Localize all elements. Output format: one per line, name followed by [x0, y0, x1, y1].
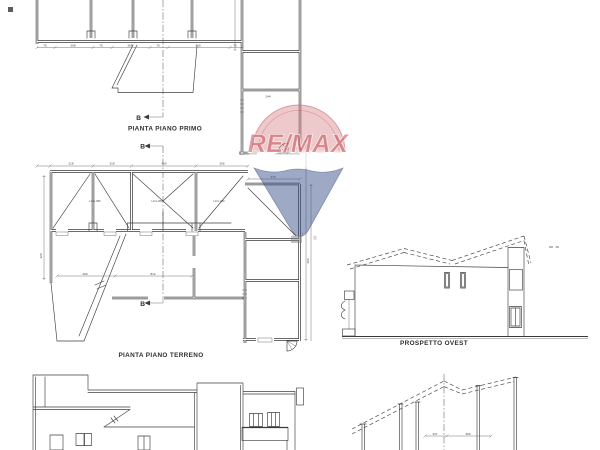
- section-arrow-shaft: [150, 296, 163, 303]
- ramp-outline: [51, 234, 126, 341]
- remax-watermark: RE/MAX ®: [248, 105, 349, 243]
- west-elevation-label: PROSPETTO OVEST: [400, 340, 468, 347]
- slit-windows: [445, 273, 466, 289]
- floorplan-sheet: 75 268 75 268 75 400 75 244 B PIANTA PIA…: [0, 0, 600, 450]
- dimension-label: 337: [432, 432, 437, 436]
- room-height-note: H=m.280: [152, 199, 163, 203]
- elevation-outline: [33, 375, 295, 450]
- dimension-line: [36, 46, 244, 49]
- section-arrow-head: [144, 115, 150, 120]
- drawing-canvas: 75 268 75 268 75 400 75 244 B PIANTA PIA…: [0, 0, 600, 450]
- dimension-label: 420: [39, 253, 43, 258]
- section-marker: B: [136, 115, 141, 122]
- dimension-label: 265: [219, 162, 224, 166]
- downspout-detail: [341, 291, 355, 336]
- section-walls: [360, 378, 518, 450]
- dimension-label: 75: [156, 44, 160, 48]
- dimension-label: 75: [99, 44, 103, 48]
- dimension-label: 393: [306, 258, 310, 263]
- dimension-label: 400: [161, 162, 166, 166]
- room-height-note: H=m.280: [214, 199, 225, 203]
- first-floor-plan-label: PIANTA PIANO PRIMO: [128, 126, 202, 133]
- ground-floor-walls: [50, 171, 300, 343]
- section-arrow-head: [145, 301, 151, 306]
- room-height-note: H=m.280: [90, 199, 101, 203]
- dimension-line-mid: [56, 275, 194, 278]
- dimension-label: 244: [265, 95, 270, 99]
- dimension-label: 75: [43, 44, 47, 48]
- section-drawing: 337 360: [352, 374, 518, 450]
- edge-fragment: [297, 388, 304, 405]
- ground-floor-plan-label: PIANTA PIANO TERRENO: [118, 352, 203, 359]
- dimension-label: 268: [127, 44, 132, 48]
- dimension-label: 268: [70, 44, 75, 48]
- spiral-stair-ground: [287, 341, 297, 351]
- section-arrow-head: [145, 144, 151, 149]
- watermark-brand-text: RE/MAX: [248, 130, 349, 158]
- balcony-railing: [242, 428, 288, 441]
- shutter-window: [510, 270, 523, 291]
- south-elevation: [33, 375, 304, 450]
- roof-dashed-lines: [352, 377, 516, 434]
- scan-artifact: [8, 7, 13, 12]
- balloon-bottom: [254, 168, 343, 237]
- registered-mark: ®: [313, 235, 317, 242]
- section-marker: B: [140, 301, 145, 308]
- elevation-outline: [355, 248, 524, 337]
- west-elevation: PROSPETTO OVEST: [341, 236, 588, 347]
- lower-window: [510, 307, 522, 328]
- dimension-label: 400: [82, 272, 87, 276]
- wall-pillars: [89, 212, 231, 231]
- section-marker: B: [140, 144, 145, 151]
- dimension-label: 400: [195, 44, 200, 48]
- dimension-label: 318: [109, 162, 114, 166]
- dimension-label: 360: [465, 432, 470, 436]
- wall-pillars: [87, 31, 196, 38]
- balloon-basket: [291, 236, 302, 243]
- roof-dashed-lines: [347, 236, 559, 269]
- dimension-label: 812: [150, 272, 155, 276]
- windows: [50, 413, 280, 450]
- ground-floor-walls-core: [50, 171, 300, 343]
- door-symbols: [56, 232, 272, 342]
- dimension-line-left: [43, 175, 46, 280]
- terrace-outline: [112, 45, 197, 93]
- dimension-label: 218: [68, 162, 73, 166]
